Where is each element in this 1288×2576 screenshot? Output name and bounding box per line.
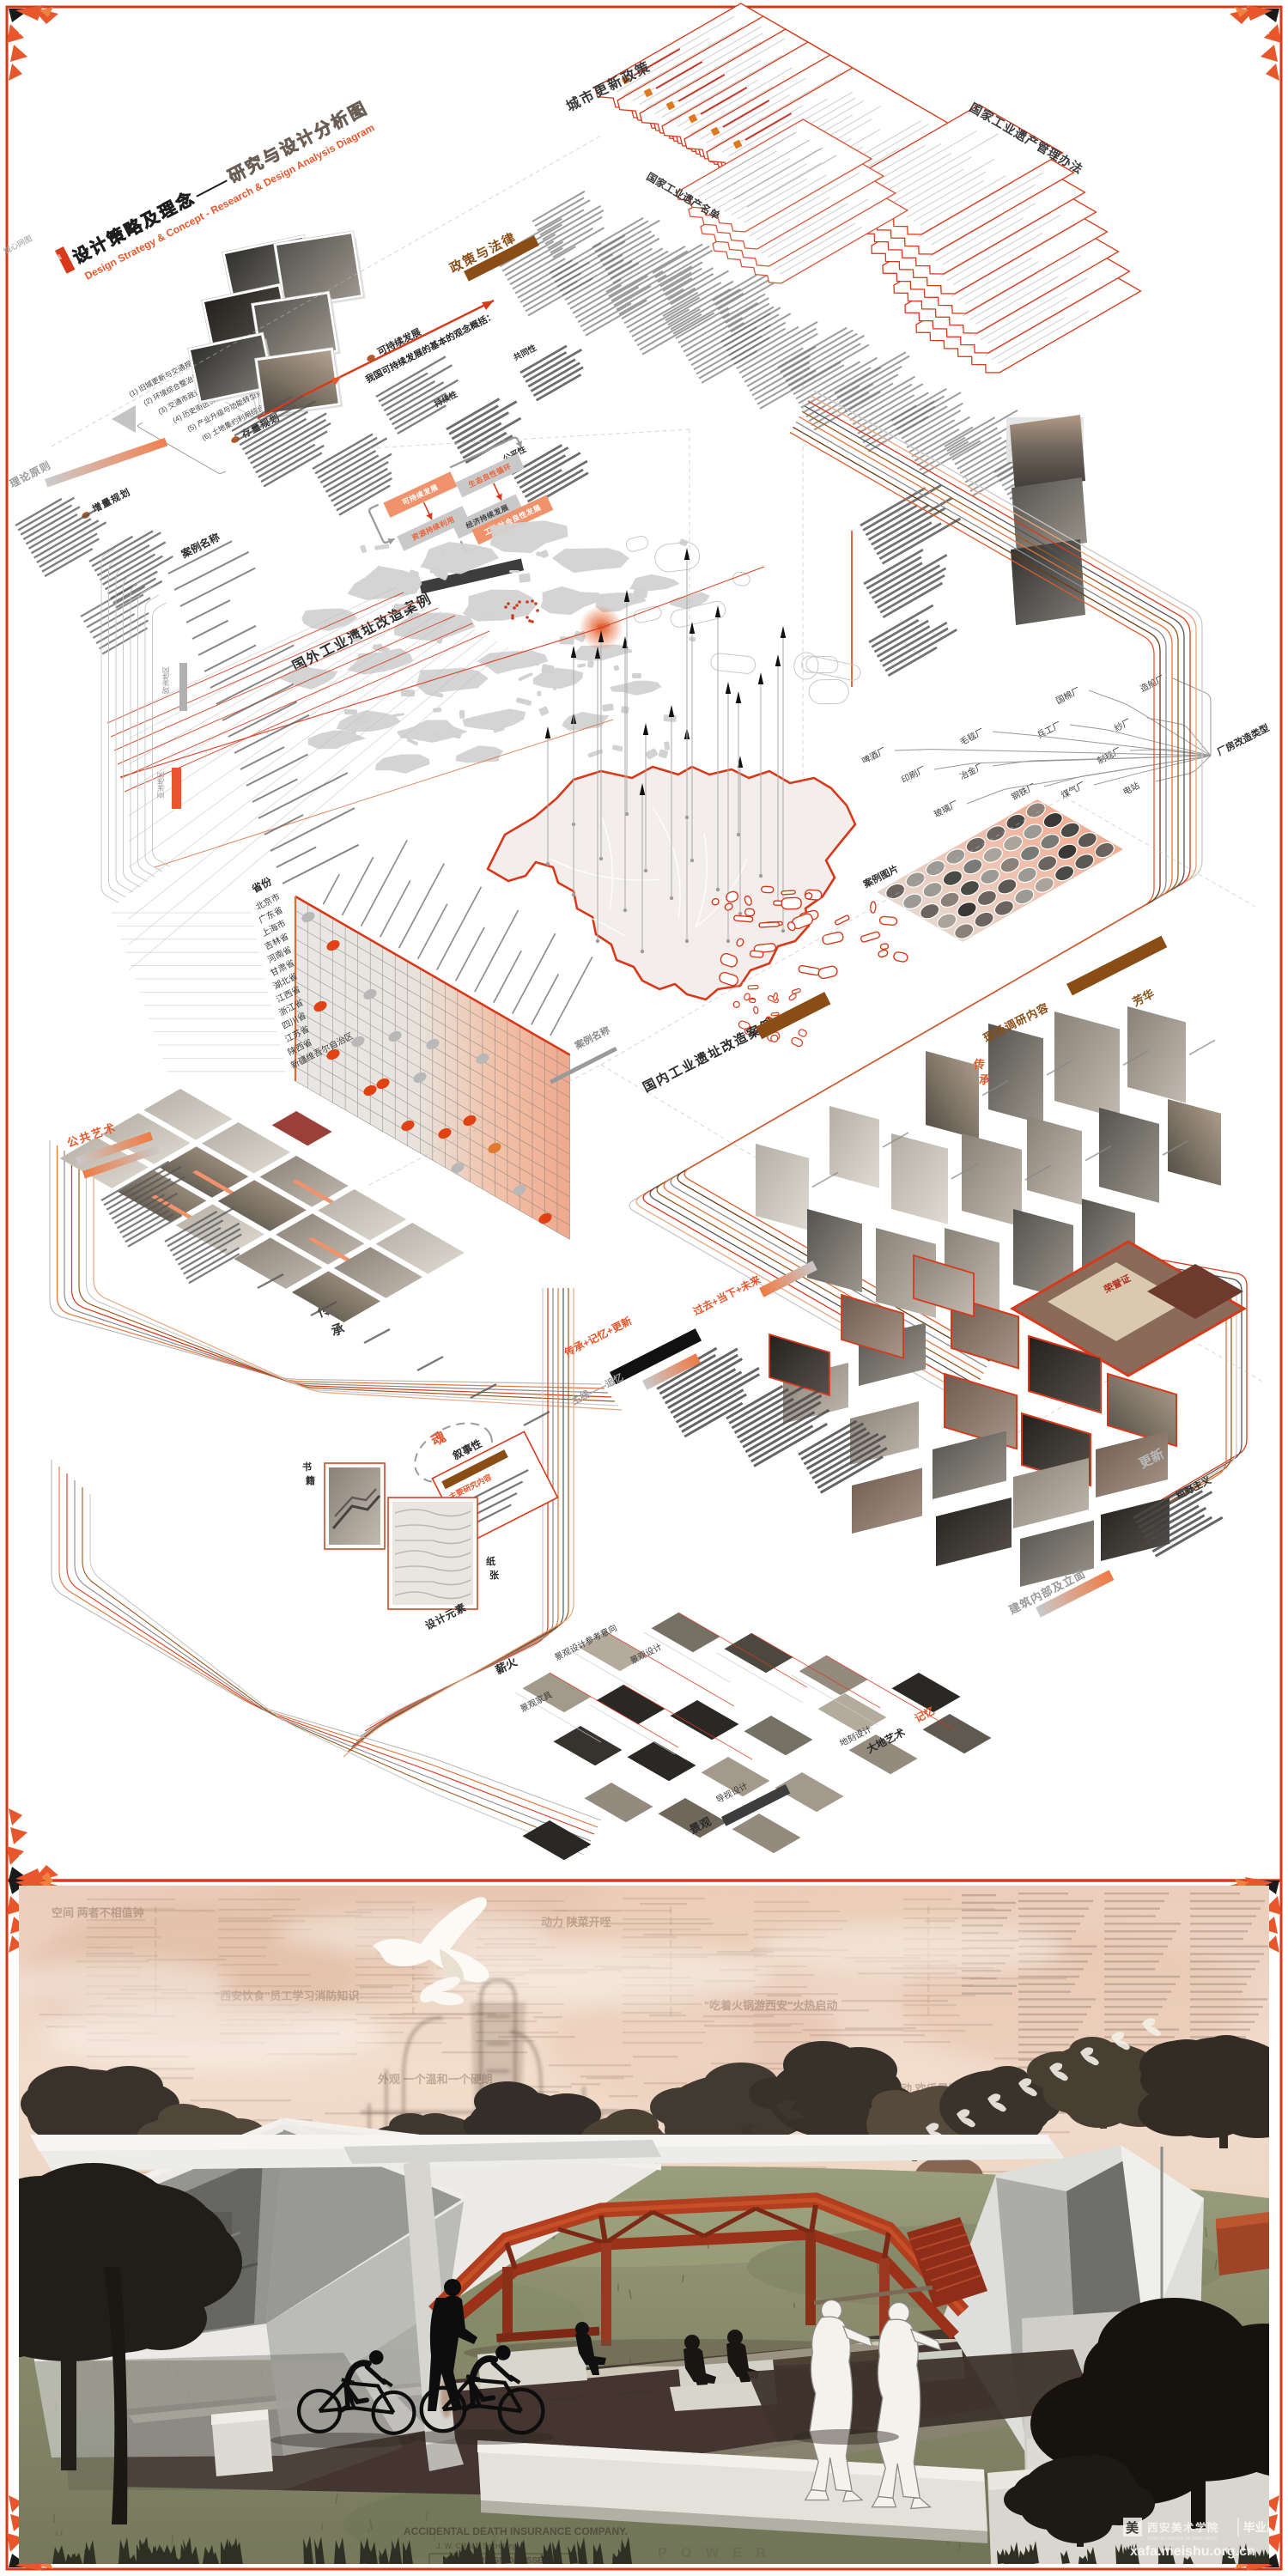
svg-text:西安美术学院: 西安美术学院 — [1147, 2521, 1219, 2534]
svg-text:ACCIDENTAL DEATH INSURANCE: ACCIDENTAL DEATH INSURANCE COMPANY. — [404, 2525, 628, 2537]
svg-text:籍: 籍 — [306, 1474, 315, 1486]
svg-text:XI'AN ACADEMY OF FINE ARTS: XI'AN ACADEMY OF FINE ARTS — [1147, 2537, 1218, 2542]
svg-text:张: 张 — [489, 1569, 500, 1581]
svg-text:"吃着火锅游西安"火热启动: "吃着火锅游西安"火热启动 — [704, 1999, 837, 2012]
svg-text:传: 传 — [973, 1058, 985, 1071]
svg-text:欧洲地区: 欧洲地区 — [161, 666, 170, 694]
svg-text:纸: 纸 — [486, 1555, 495, 1567]
svg-text:"西安饮食"员工学习消防知识: "西安饮食"员工学习消防知识 — [215, 1990, 359, 2002]
svg-text:空间 两者不相值钟: 空间 两者不相值钟 — [52, 1906, 144, 1919]
svg-text:动力 陕菜开咥: 动力 陕菜开咥 — [541, 1916, 611, 1929]
svg-text:xafa.meishu.org.cn: xafa.meishu.org.cn — [1130, 2544, 1255, 2559]
svg-text:P O W E R: P O W E R — [658, 2546, 771, 2561]
svg-text:承: 承 — [979, 1073, 990, 1086]
svg-text:J. W. CRAM, Secretary: J. W. CRAM, Secretary — [436, 2542, 516, 2550]
svg-text:亚洲地区: 亚洲地区 — [156, 771, 165, 799]
svg-text:美: 美 — [1126, 2520, 1139, 2536]
svg-text:书: 书 — [302, 1461, 312, 1473]
